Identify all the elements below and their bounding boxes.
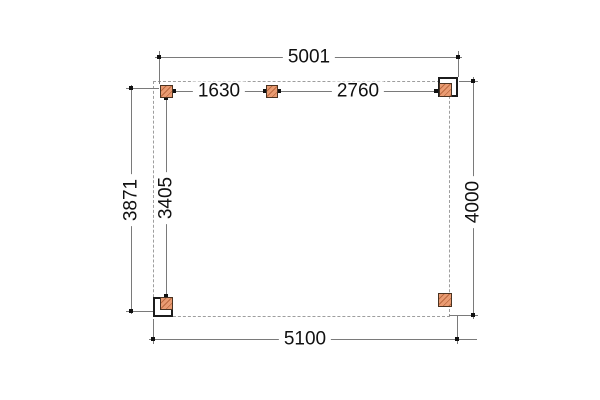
post-top-middle [266,85,278,98]
dim-tick [471,79,475,83]
post-top-right [439,83,452,97]
dim-label-left-inner: 3405 [157,172,176,224]
dim-label-right: 4000 [464,176,483,228]
dim-label-span-right: 2760 [332,82,384,101]
dim-tick [456,55,460,59]
dim-tick [455,337,459,341]
dimension-drawing: 5001 1630 2760 3871 3405 4000 5100 [0,0,600,400]
dim-tick [129,309,133,313]
dim-tick [471,313,475,317]
dim-label-span-left: 1630 [193,82,245,101]
dim-tick [129,86,133,90]
dim-tick [151,337,155,341]
post-top-left [160,85,173,98]
dim-label-top-width: 5001 [283,48,335,67]
dim-ext-right-top [459,81,478,82]
dim-label-left-outer: 3871 [122,174,141,226]
dashed-outline [153,81,450,317]
post-bottom-right [438,293,452,307]
post-bottom-left [160,297,173,310]
dim-label-bottom-width: 5100 [279,330,331,349]
dim-tick [157,55,161,59]
